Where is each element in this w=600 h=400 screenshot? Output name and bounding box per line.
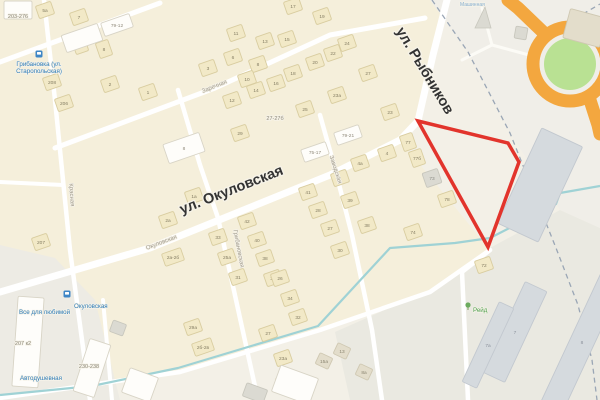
building-number: 4 <box>386 151 389 157</box>
building-number: 27 <box>265 331 271 337</box>
building-number: 1 <box>147 90 150 96</box>
block-label-203-276: 203-276 <box>8 14 28 20</box>
building-number: 20 <box>312 60 318 66</box>
bus-stop-label[interactable]: Окуловская <box>74 303 108 310</box>
block-label-27-27b: 27-27б <box>266 116 283 122</box>
building-number: 38 <box>364 223 370 229</box>
building-number: 8а <box>361 370 367 376</box>
building-number: 7а <box>485 343 491 349</box>
poi-label[interactable]: Автодушевная <box>20 375 62 382</box>
building-number: 23 <box>387 110 393 116</box>
building-number: 30 <box>337 248 343 254</box>
building-number: 206 <box>60 101 68 107</box>
building-number: 77б <box>413 156 421 162</box>
building-number: 11 <box>234 31 239 37</box>
poi-vse-dlya-lyubimoy[interactable]: Все для любимой <box>19 309 71 316</box>
building-block <box>242 383 267 400</box>
bus-window-glyph <box>65 292 69 295</box>
building-number: 27 <box>327 226 333 232</box>
building-number: 26 <box>277 276 283 282</box>
bus-stop-label[interactable]: Старопольская) <box>16 68 62 75</box>
map-canvas[interactable]: 5а77а82082062071113151719368122422201816… <box>0 0 600 400</box>
building-number: 8 <box>183 146 186 152</box>
tree-icon-crown <box>465 302 470 307</box>
bus-window-glyph <box>37 52 41 55</box>
building-number: 2а <box>165 218 171 224</box>
bus-stop-label[interactable]: Грибановка (ул. <box>16 61 62 68</box>
building-number: 24 <box>344 41 350 47</box>
building-number: 17 <box>290 4 296 10</box>
building-number: 4а <box>357 161 363 167</box>
building-number: 73 <box>429 176 435 182</box>
map-svg[interactable]: 5а77а82082062071113151719368122422201816… <box>0 0 600 400</box>
building-number: 18 <box>290 71 296 77</box>
building-number: 2б-2в <box>197 345 210 351</box>
building-number: 12 <box>229 98 235 104</box>
building-number: 79-12 <box>111 23 124 29</box>
building-number: 10 <box>244 77 250 83</box>
building-number: 32 <box>295 315 301 321</box>
poi-label[interactable]: Все для любимой <box>19 309 71 316</box>
building-number: 28 <box>315 208 321 214</box>
building-number: 23а <box>333 93 341 99</box>
building-23а: 23а <box>273 349 292 367</box>
building-number: 25а <box>223 255 231 261</box>
building-number: 34 <box>287 296 293 302</box>
building-number: 208 <box>48 80 56 86</box>
building-number: 7 <box>78 15 81 21</box>
building-number: 13 <box>262 39 268 45</box>
building-number: 8 <box>581 340 584 346</box>
building-number: 22 <box>330 51 336 57</box>
building-number: 31 <box>235 275 241 281</box>
block-label-230-238: 230-238 <box>79 364 99 370</box>
building-number: 29 <box>237 131 243 137</box>
building-number: 2а-2б <box>167 255 180 261</box>
building-number: 38 <box>262 256 268 262</box>
building-block <box>271 365 318 400</box>
building-number: 16 <box>273 81 279 87</box>
building-number: 3 <box>207 66 210 72</box>
building-number: 2 <box>109 82 112 88</box>
building-number: 14 <box>253 88 259 94</box>
roundabout-green-island <box>544 38 596 90</box>
building-number: 13 <box>339 349 345 355</box>
poi-mashinnaya[interactable]: Машинная <box>460 2 485 8</box>
building-number: 77 <box>405 140 411 146</box>
building-number: 72 <box>481 263 487 269</box>
building-15а: 15а <box>315 353 333 370</box>
block-label-207k2: 207 к2 <box>15 341 31 347</box>
building-number: 207 <box>37 240 45 246</box>
building-number: 19 <box>319 14 325 20</box>
poi-avtodushevnaya[interactable]: Автодушевная <box>20 375 62 382</box>
building-shape <box>514 26 528 40</box>
building-number: 74 <box>410 230 416 236</box>
building-number: 29а <box>189 325 197 331</box>
building-number: 27 <box>365 71 371 77</box>
building-number: 6 <box>232 55 235 61</box>
building-number: 78 <box>444 197 450 203</box>
building-number: 33 <box>215 235 221 241</box>
building-number: 75-17 <box>309 150 322 156</box>
building-number: 40 <box>254 238 260 244</box>
building-number: 15а <box>320 359 328 365</box>
building-number: 41 <box>305 190 311 196</box>
building-number: 8 <box>103 47 106 53</box>
building-number: 8 <box>257 62 260 68</box>
building-number: 79-21 <box>342 133 355 139</box>
building-number: 42 <box>244 219 250 225</box>
building-number: 39 <box>347 198 353 204</box>
building-shape <box>242 383 267 400</box>
building-number: 25 <box>302 107 308 113</box>
building-block <box>514 26 528 40</box>
building-number: 15 <box>284 37 290 43</box>
building-number: 5а <box>42 8 48 14</box>
poi-label[interactable]: Рейд <box>473 307 488 314</box>
building-number: 23а <box>279 356 287 362</box>
building-number: 7 <box>514 330 517 336</box>
building-shape <box>271 365 318 400</box>
poi-label[interactable]: Машинная <box>460 2 485 8</box>
